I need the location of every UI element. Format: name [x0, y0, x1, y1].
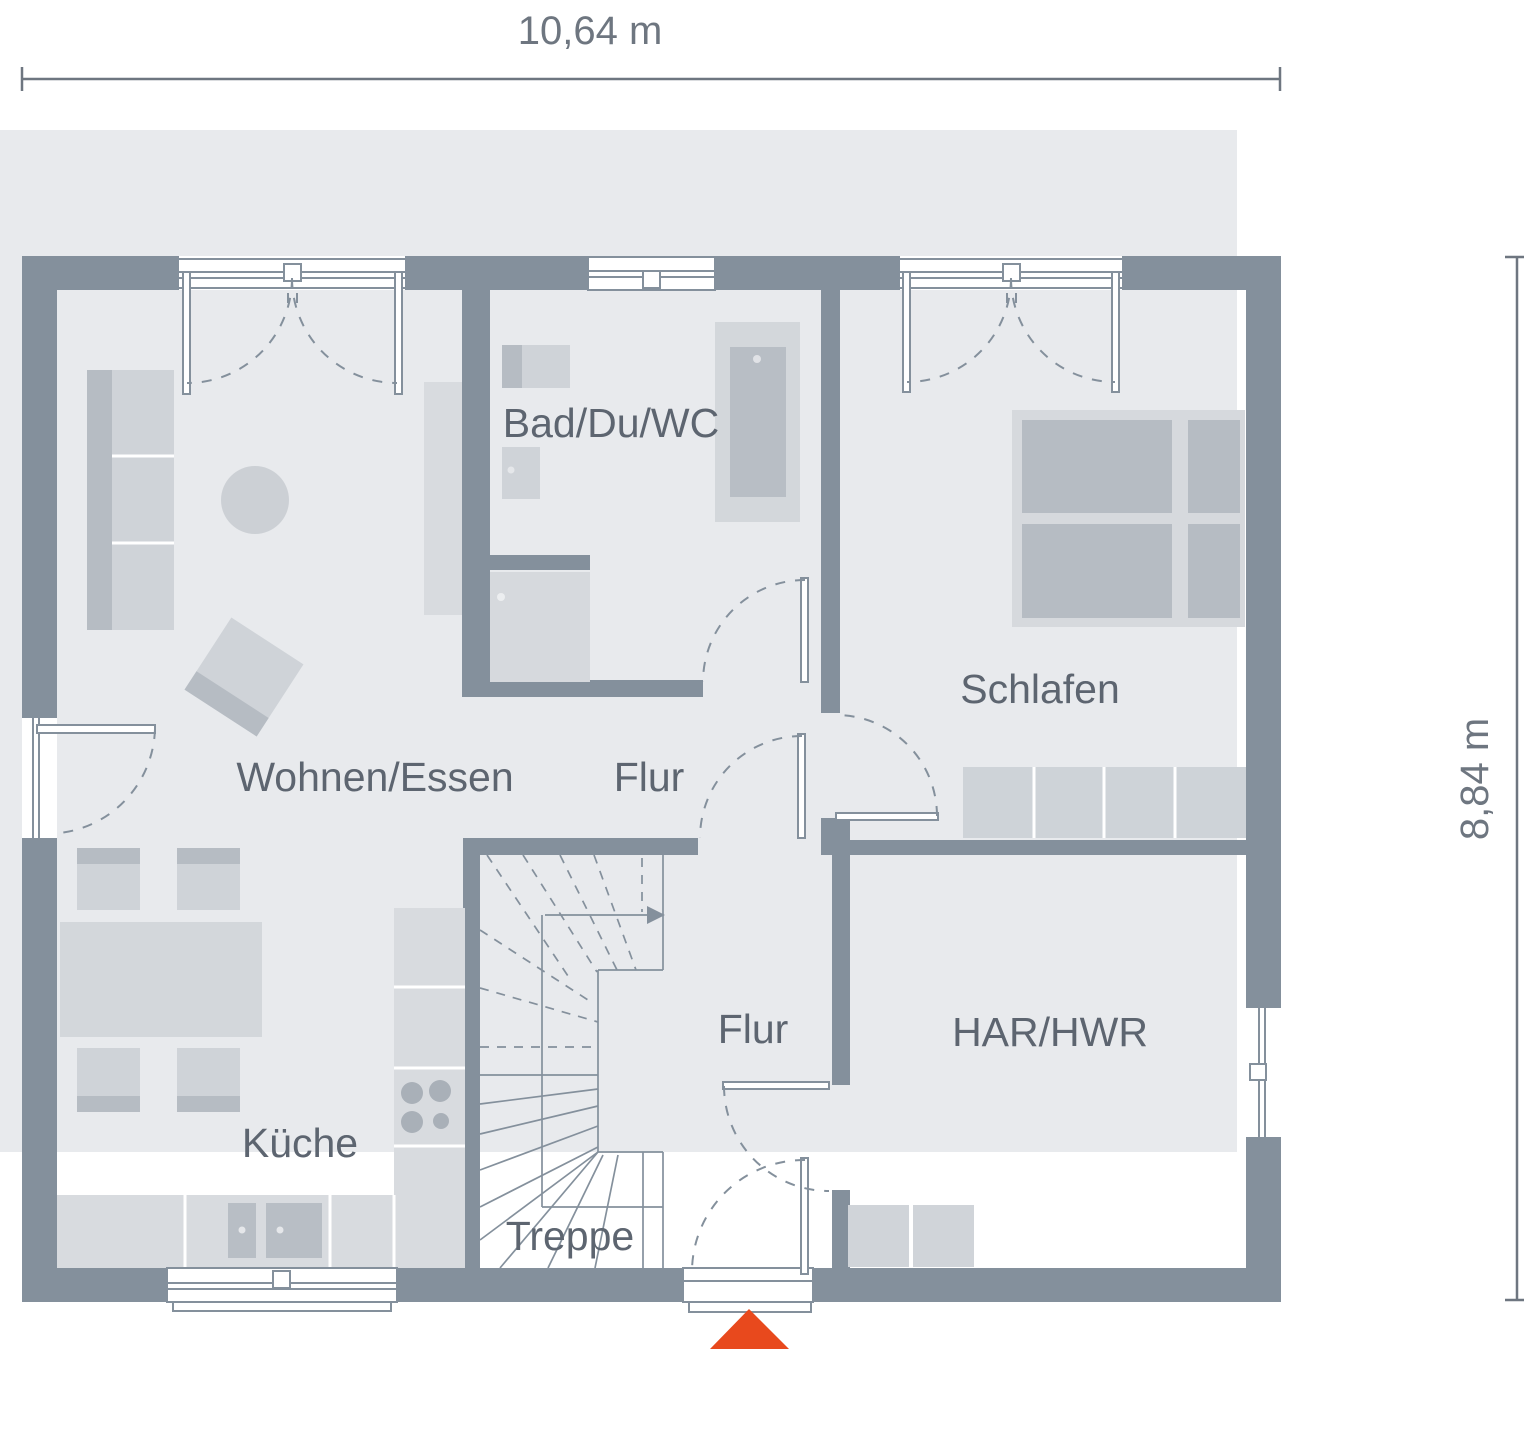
wall-flur-schlafen	[821, 290, 840, 713]
wall-stair-north	[463, 838, 698, 855]
room-label-bad: Bad/Du/WC	[503, 400, 719, 446]
bathtub	[715, 322, 800, 522]
dimension-height-label: 8,84 m	[1453, 718, 1497, 840]
bed	[1012, 410, 1245, 627]
dimension-width-label: 10,64 m	[518, 9, 663, 53]
window-handle-icon	[1250, 1064, 1266, 1080]
dining-chair	[177, 1048, 240, 1112]
dimension-top: 10,64 m	[22, 9, 1280, 91]
wall-bad-stub	[462, 555, 590, 570]
room-label-kueche: Küche	[242, 1120, 358, 1166]
wall-segment	[1122, 256, 1281, 290]
wall-segment	[22, 290, 57, 718]
room-label-har-hwr: HAR/HWR	[952, 1009, 1148, 1055]
shower	[490, 572, 590, 682]
wall-flur-har	[832, 855, 850, 1085]
wall-stair-west	[463, 855, 480, 1268]
wall-segment	[22, 256, 179, 290]
wall-segment	[813, 1268, 1281, 1302]
window-handle-icon	[643, 271, 660, 288]
room-label-flur-lower: Flur	[718, 1006, 789, 1052]
door-leaf	[37, 725, 155, 733]
door-leaf	[798, 734, 805, 838]
wall-segment	[22, 838, 57, 1268]
dining-table	[60, 922, 262, 1037]
sideboard	[424, 382, 462, 615]
kitchen-sink	[228, 1203, 322, 1258]
window-bad	[588, 257, 715, 290]
door-leaf	[836, 813, 938, 820]
wall-segment	[1246, 1137, 1281, 1268]
wall-segment	[22, 1268, 167, 1302]
floor-plan-drawing: 10,64 m 8,84 m Wohnen/Essen Flur Bad/Du/…	[0, 0, 1524, 1453]
door-leaf	[801, 1158, 808, 1274]
wall-segment	[1246, 290, 1281, 1008]
entrance-marker-icon	[710, 1309, 789, 1349]
door-leaf	[801, 578, 808, 682]
rug	[221, 466, 289, 534]
dining-chair	[77, 848, 140, 910]
room-label-flur-upper: Flur	[614, 754, 685, 800]
window-handle-icon	[273, 1271, 290, 1288]
room-label-schlafen: Schlafen	[960, 666, 1120, 712]
floor-plan-page: 10,64 m 8,84 m Wohnen/Essen Flur Bad/Du/…	[0, 0, 1524, 1453]
dryer	[913, 1205, 974, 1267]
wall-segment	[397, 1268, 683, 1302]
window-har	[1246, 1008, 1281, 1137]
wall-segment	[715, 256, 900, 290]
wall-bad-west	[462, 290, 490, 680]
dining-chair	[177, 848, 240, 910]
wardrobe	[963, 767, 1246, 838]
room-label-treppe: Treppe	[506, 1213, 634, 1259]
window-sill	[173, 1302, 391, 1311]
toilet	[502, 447, 540, 499]
washer	[848, 1205, 909, 1267]
window-kueche	[167, 1268, 397, 1311]
dining-chair	[77, 1048, 140, 1112]
door-entrance	[683, 1158, 813, 1312]
wall-schlafen-har	[838, 840, 1246, 855]
room-label-wohnen-essen: Wohnen/Essen	[236, 754, 513, 800]
washbasin	[502, 345, 570, 388]
sofa	[87, 370, 174, 630]
door-leaf	[723, 1082, 829, 1089]
wall-flur-har	[832, 1190, 850, 1268]
wall-bad-south	[462, 680, 703, 697]
wall-segment	[405, 256, 588, 290]
dimension-right: 8,84 m	[1453, 257, 1524, 1300]
